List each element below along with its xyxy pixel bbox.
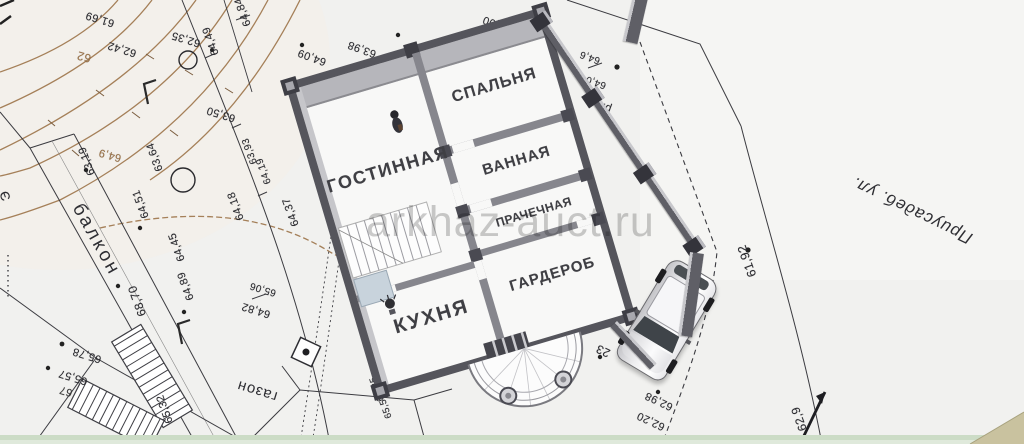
screenshot-root: 61,69 62,42 62,35 64,49 63,50 64,84 64,0… bbox=[0, 0, 1024, 444]
green-strip bbox=[0, 435, 1024, 440]
manhole-icon bbox=[291, 337, 320, 366]
green-strip-light bbox=[0, 440, 1024, 444]
watermark: arkhaz-auct.ru bbox=[366, 198, 655, 247]
